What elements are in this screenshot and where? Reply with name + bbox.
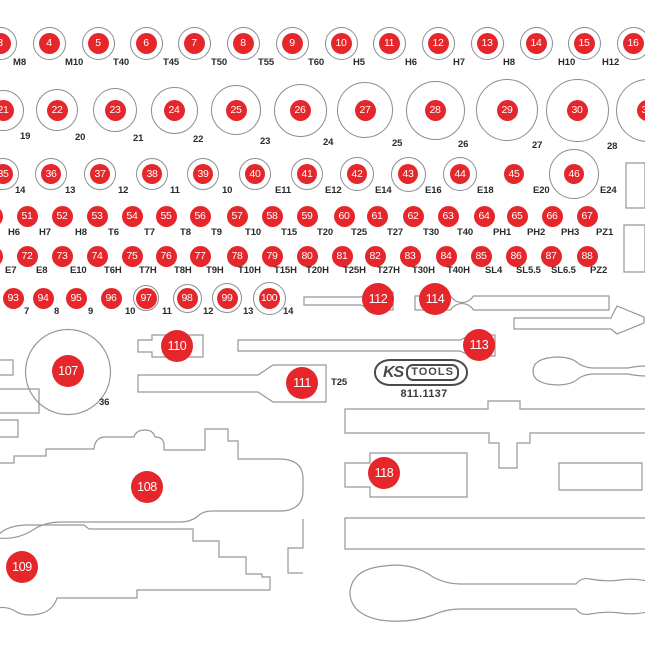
size-label: T60	[308, 57, 324, 68]
size-label: E8	[36, 265, 47, 276]
position-marker: 11	[379, 33, 400, 54]
part-number: 811.1137	[374, 388, 474, 400]
position-marker: 4	[39, 33, 60, 54]
size-label: 10	[125, 306, 135, 317]
size-label: H10	[558, 57, 575, 68]
size-label: E20	[533, 185, 550, 196]
size-label: 28	[607, 141, 617, 152]
position-marker: 57	[227, 206, 248, 227]
position-marker: 51	[17, 206, 38, 227]
size-label: T8	[180, 227, 191, 238]
size-label: 12	[118, 185, 128, 196]
position-marker: 40	[245, 164, 265, 184]
position-marker: 22	[47, 100, 68, 121]
ks-tools-logo: KS TOOLS	[374, 359, 468, 386]
position-marker: 96	[101, 288, 122, 309]
size-label: 9	[88, 306, 93, 317]
size-label: PH1	[493, 227, 511, 238]
position-marker: 64	[474, 206, 495, 227]
position-marker: 10	[331, 33, 352, 54]
size-label: E24	[600, 185, 617, 196]
position-marker: 87	[541, 246, 562, 267]
size-label: T25H	[343, 265, 366, 276]
position-marker: 62	[403, 206, 424, 227]
position-marker: 56	[190, 206, 211, 227]
position-marker: 100	[259, 288, 280, 309]
size-label: E14	[375, 185, 392, 196]
position-marker: 81	[332, 246, 353, 267]
size-label: T27H	[377, 265, 400, 276]
position-marker: 24	[164, 100, 185, 121]
size-label: 7	[24, 306, 29, 317]
size-label: PH3	[561, 227, 579, 238]
size-label: 24	[323, 137, 333, 148]
size-label: T15H	[274, 265, 297, 276]
size-label: E16	[425, 185, 442, 196]
position-marker: 110	[161, 330, 193, 362]
size-label: 19	[20, 131, 30, 142]
size-label: T9	[211, 227, 222, 238]
position-marker: 82	[365, 246, 386, 267]
position-marker: 73	[52, 246, 73, 267]
size-label: T6H	[104, 265, 122, 276]
position-marker: 44	[450, 164, 470, 184]
position-marker: 111	[286, 367, 318, 399]
position-marker: 42	[347, 164, 367, 184]
position-marker: 109	[6, 551, 38, 583]
position-marker: 77	[190, 246, 211, 267]
position-marker: 108	[131, 471, 163, 503]
position-marker: 94	[33, 288, 54, 309]
size-label: 27	[532, 140, 542, 151]
size-label: T20H	[306, 265, 329, 276]
position-marker: 29	[497, 100, 518, 121]
position-marker: 80	[297, 246, 318, 267]
position-marker: 79	[262, 246, 283, 267]
size-label: T50	[211, 57, 227, 68]
position-marker: 7	[184, 33, 205, 54]
position-marker: 84	[436, 246, 457, 267]
position-marker: 107	[52, 355, 84, 387]
position-marker: 74	[87, 246, 108, 267]
size-label: 8	[54, 306, 59, 317]
size-label: T25	[331, 377, 347, 388]
size-label: 22	[193, 134, 203, 145]
size-label: T7	[144, 227, 155, 238]
position-marker: 25	[226, 100, 247, 121]
position-marker: 9	[282, 33, 303, 54]
size-label: H6	[8, 227, 20, 238]
size-label: 11	[170, 185, 180, 196]
size-label: 26	[458, 139, 468, 150]
position-marker: 16	[623, 33, 644, 54]
size-label: T45	[163, 57, 179, 68]
position-marker: 112	[362, 283, 394, 315]
size-label: 36	[99, 397, 109, 408]
position-marker: 23	[105, 100, 126, 121]
size-label: T30	[423, 227, 439, 238]
size-label: T40H	[447, 265, 470, 276]
position-marker: 6	[136, 33, 157, 54]
size-label: T20	[317, 227, 333, 238]
position-marker: 71	[0, 246, 3, 267]
position-marker: 28	[425, 100, 446, 121]
size-label: E11	[275, 185, 291, 196]
position-marker: 13	[477, 33, 498, 54]
position-marker: 14	[526, 33, 547, 54]
position-marker: 83	[400, 246, 421, 267]
size-label: 14	[15, 185, 25, 196]
position-marker: 60	[334, 206, 355, 227]
size-label: H7	[453, 57, 465, 68]
position-marker: 59	[297, 206, 318, 227]
size-label: T27	[387, 227, 403, 238]
position-marker: 93	[3, 288, 24, 309]
position-marker: 54	[122, 206, 143, 227]
size-label: H7	[39, 227, 51, 238]
position-marker: 30	[567, 100, 588, 121]
position-marker: 52	[52, 206, 73, 227]
size-label: 14	[283, 306, 293, 317]
size-label: SL6.5	[551, 265, 576, 276]
position-marker: 63	[438, 206, 459, 227]
size-label: M8	[13, 57, 26, 68]
position-marker: 67	[577, 206, 598, 227]
size-label: T6	[108, 227, 119, 238]
size-label: PZ1	[596, 227, 613, 238]
size-label: M10	[65, 57, 83, 68]
logo-ks-text: KS	[383, 364, 403, 382]
position-marker: 53	[87, 206, 108, 227]
size-label: T40	[113, 57, 129, 68]
size-label: E10	[70, 265, 87, 276]
size-label: T30H	[412, 265, 435, 276]
position-marker: 41	[297, 164, 317, 184]
size-label: H12	[602, 57, 619, 68]
position-marker: 88	[577, 246, 598, 267]
marker-layer: 3M84M105T406T457T508T559T6010H511H612H71…	[0, 0, 645, 645]
size-label: T7H	[139, 265, 157, 276]
size-label: T10	[245, 227, 261, 238]
size-label: T10H	[238, 265, 261, 276]
position-marker: 45	[504, 164, 524, 184]
position-marker: 43	[398, 164, 418, 184]
position-marker: 86	[506, 246, 527, 267]
position-marker: 61	[367, 206, 388, 227]
size-label: PZ2	[590, 265, 607, 276]
position-marker: 97	[136, 288, 157, 309]
size-label: SL5.5	[516, 265, 541, 276]
size-label: PH2	[527, 227, 545, 238]
position-marker: 55	[156, 206, 177, 227]
position-marker: 15	[574, 33, 595, 54]
size-label: 25	[392, 138, 402, 149]
position-marker: 75	[122, 246, 143, 267]
size-label: E7	[5, 265, 16, 276]
foam-inlay-diagram: 3M84M105T406T457T508T559T6010H511H612H71…	[0, 0, 645, 645]
position-marker: 98	[177, 288, 198, 309]
position-marker: 37	[90, 164, 110, 184]
size-label: T25	[351, 227, 367, 238]
position-marker: 85	[471, 246, 492, 267]
size-label: 10	[222, 185, 232, 196]
position-marker: 58	[262, 206, 283, 227]
size-label: 11	[162, 306, 172, 317]
size-label: T15	[281, 227, 297, 238]
position-marker: 99	[217, 288, 238, 309]
position-marker: 113	[463, 329, 495, 361]
position-marker: 72	[17, 246, 38, 267]
position-marker: 118	[368, 457, 400, 489]
position-marker: 27	[355, 100, 376, 121]
position-marker: 26	[290, 100, 311, 121]
size-label: T40	[457, 227, 473, 238]
size-label: T8H	[174, 265, 192, 276]
size-label: H8	[503, 57, 515, 68]
position-marker: 46	[564, 164, 584, 184]
size-label: H5	[353, 57, 365, 68]
size-label: H6	[405, 57, 417, 68]
position-marker: 38	[142, 164, 162, 184]
position-marker: 12	[428, 33, 449, 54]
position-marker: 65	[507, 206, 528, 227]
position-marker: 8	[233, 33, 254, 54]
size-label: T9H	[206, 265, 224, 276]
position-marker: 5	[88, 33, 109, 54]
position-marker: 66	[542, 206, 563, 227]
position-marker: 114	[419, 283, 451, 315]
size-label: T55	[258, 57, 274, 68]
position-marker: 39	[193, 164, 213, 184]
position-marker: 95	[66, 288, 87, 309]
size-label: SL4	[485, 265, 502, 276]
size-label: E18	[477, 185, 494, 196]
size-label: 13	[65, 185, 75, 196]
position-marker: 78	[227, 246, 248, 267]
size-label: E12	[325, 185, 342, 196]
logo-tools-text: TOOLS	[406, 364, 459, 382]
size-label: 23	[260, 136, 270, 147]
size-label: 13	[243, 306, 253, 317]
position-marker: 50	[0, 206, 3, 227]
size-label: 12	[203, 306, 213, 317]
size-label: 21	[133, 133, 143, 144]
position-marker: 36	[41, 164, 61, 184]
position-marker: 76	[156, 246, 177, 267]
size-label: H8	[75, 227, 87, 238]
size-label: 20	[75, 132, 85, 143]
